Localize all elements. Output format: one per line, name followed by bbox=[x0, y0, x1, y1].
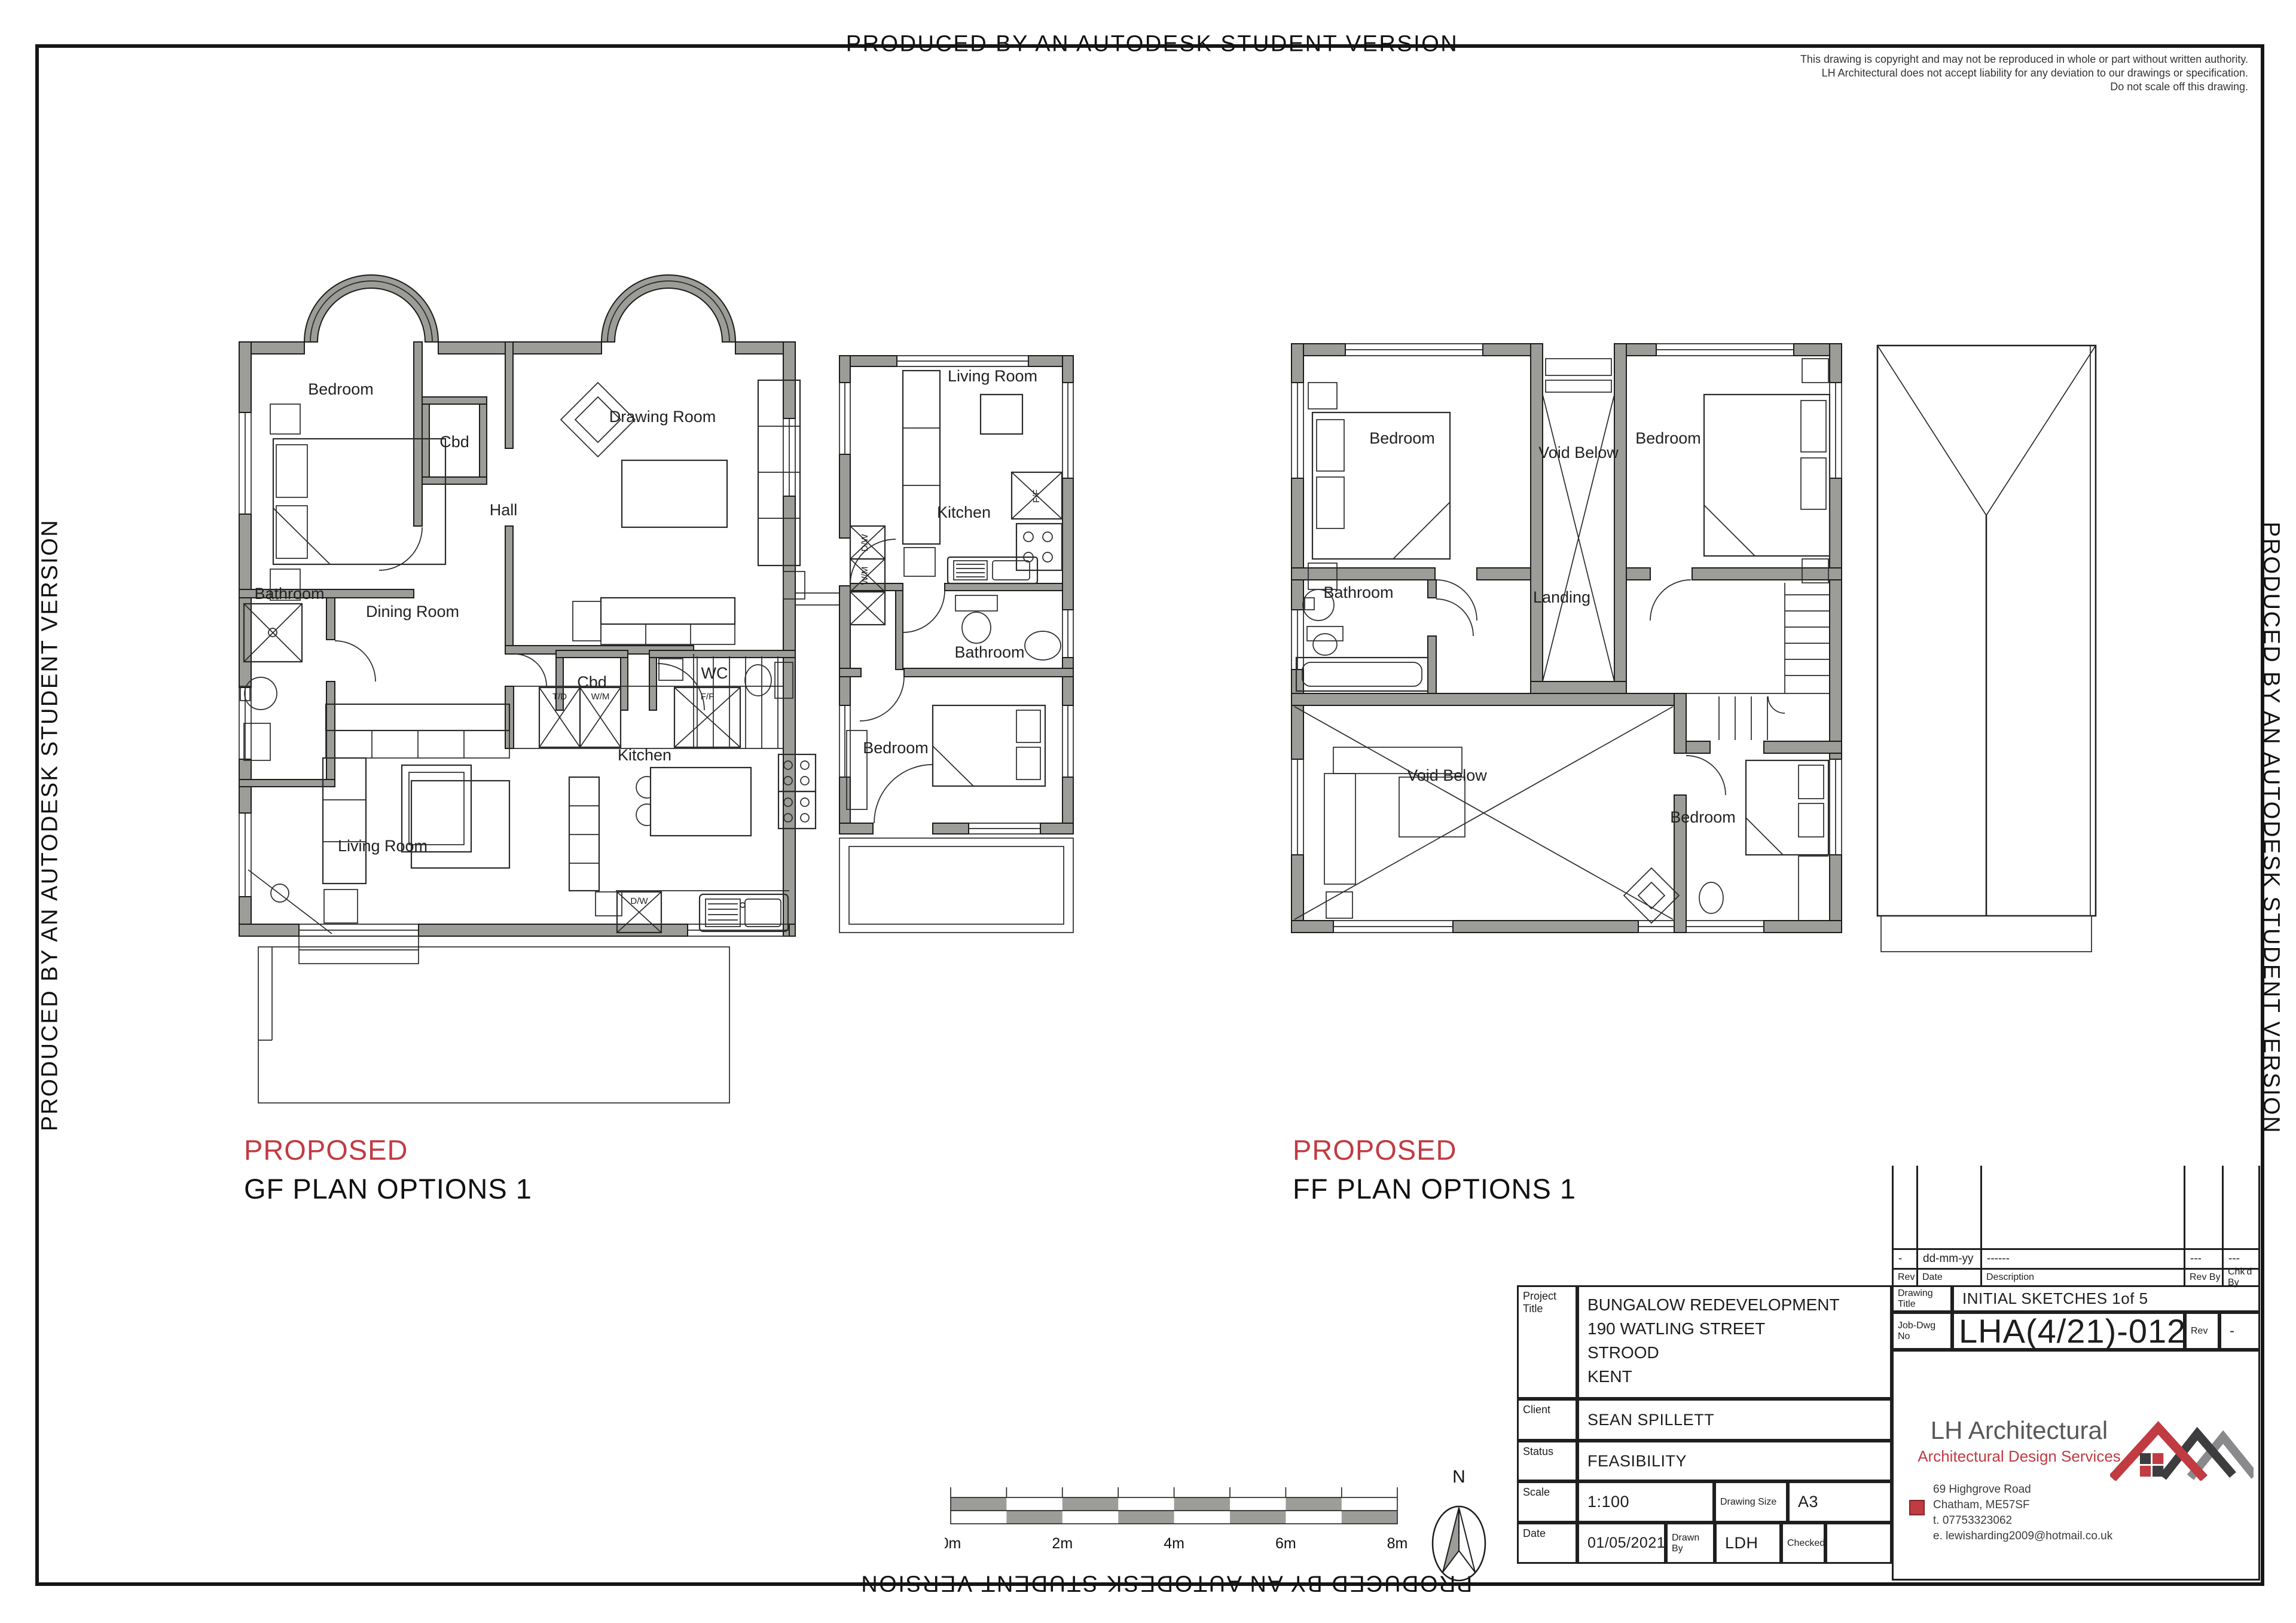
gf-label-dw: D/W bbox=[630, 896, 648, 906]
checked-value bbox=[1825, 1523, 1892, 1564]
gf-label-dining: Dining Room bbox=[366, 603, 459, 621]
ff-label-bedroom-tl: Bedroom bbox=[1369, 429, 1435, 447]
company-name: LH Architectural bbox=[1918, 1416, 2121, 1445]
annex-label-dw: D/W bbox=[860, 534, 870, 552]
gf-plan: Bedroom Cbd Drawing Room Hall Bathroom D… bbox=[239, 275, 839, 1103]
gf-label-hall: Hall bbox=[490, 501, 518, 519]
revision-entry-description: ------ bbox=[1980, 1248, 2185, 1270]
rev-label: Rev bbox=[2185, 1312, 2219, 1350]
floor-plans-drawing: Bedroom Cbd Drawing Room Hall Bathroom D… bbox=[227, 263, 2164, 1130]
gf-label-kitchen: Kitchen bbox=[618, 746, 671, 764]
annex-label-living: Living Room bbox=[948, 367, 1037, 385]
gf-label-wm: W/M bbox=[591, 692, 610, 702]
ff-label-void-top: Void Below bbox=[1538, 444, 1619, 461]
drawing-title-label: Drawing Title bbox=[1892, 1285, 1952, 1312]
gf-proposed-label: PROPOSED bbox=[244, 1133, 532, 1166]
scale-8m: 8m bbox=[1387, 1535, 1408, 1552]
status-value: FEASIBILITY bbox=[1577, 1441, 1892, 1481]
ff-label-bedroom-br: Bedroom bbox=[1670, 808, 1736, 826]
scale-6m: 6m bbox=[1275, 1535, 1296, 1552]
gf-label-drawing-room: Drawing Room bbox=[609, 408, 716, 426]
company-tagline: Architectural Design Services bbox=[1900, 1447, 2139, 1466]
annex-label-bedroom: Bedroom bbox=[863, 739, 929, 757]
scale-4m: 4m bbox=[1164, 1535, 1184, 1552]
drawn-by-label: Drawn By bbox=[1666, 1523, 1715, 1564]
scale-2m: 2m bbox=[1052, 1535, 1073, 1552]
project-title-line1: BUNGALOW REDEVELOPMENT bbox=[1587, 1293, 1890, 1317]
revision-header-chkdby: Chk'd By bbox=[2222, 1268, 2260, 1287]
address-bullet bbox=[1909, 1500, 1925, 1515]
scale-label: Scale bbox=[1517, 1481, 1577, 1523]
rev-value: - bbox=[2219, 1312, 2260, 1350]
revision-entry-rev: - bbox=[1892, 1248, 1918, 1270]
copyright-line3: Do not scale off this drawing. bbox=[1710, 80, 2248, 94]
project-title-value: BUNGALOW REDEVELOPMENT 190 WATLING STREE… bbox=[1579, 1287, 1890, 1389]
autodesk-banner-right: PRODUCED BY AN AUTODESK STUDENT VERSION bbox=[2258, 522, 2284, 1135]
annex-label-ff: F/F bbox=[1031, 490, 1042, 503]
revision-header-revby: Rev By bbox=[2184, 1268, 2224, 1287]
annex-label-kitchen: Kitchen bbox=[937, 503, 991, 521]
checked-label: Checked bbox=[1781, 1523, 1825, 1564]
ff-label-landing: Landing bbox=[1533, 588, 1590, 606]
address-line3: t. 07753323062 bbox=[1933, 1513, 2112, 1529]
project-title-line4: KENT bbox=[1587, 1365, 1890, 1389]
scale-value: 1:100 bbox=[1577, 1481, 1714, 1523]
drawing-size-label: Drawing Size bbox=[1714, 1481, 1788, 1523]
client-value: SEAN SPILLETT bbox=[1577, 1399, 1892, 1441]
annex-label-bathroom: Bathroom bbox=[954, 643, 1024, 661]
project-title-label: Project Title bbox=[1517, 1285, 1577, 1399]
company-logo-icon bbox=[2110, 1421, 2254, 1481]
address-line2: Chatham, ME57SF bbox=[1933, 1497, 2112, 1513]
ff-plan: Bedroom Bedroom Void Below Bathroom Land… bbox=[1291, 344, 1842, 933]
autodesk-banner-left: PRODUCED BY AN AUTODESK STUDENT VERSION bbox=[38, 519, 63, 1132]
company-address: 69 Highgrove Road Chatham, ME57SF t. 077… bbox=[1933, 1482, 2112, 1544]
annex-plan: Living Room Kitchen Bathroom Bedroom D/W… bbox=[839, 356, 1073, 933]
revision-entry-revby: --- bbox=[2184, 1248, 2224, 1270]
company-panel: LH Architectural Architectural Design Se… bbox=[1892, 1350, 2260, 1581]
autodesk-banner-top: PRODUCED BY AN AUTODESK STUDENT VERSION bbox=[846, 32, 1459, 57]
date-label: Date bbox=[1517, 1523, 1577, 1564]
scale-bar: 0m 2m 4m 6m 8m bbox=[945, 1477, 1423, 1578]
revision-header-description: Description bbox=[1980, 1268, 2185, 1287]
revision-entry-date: dd-mm-yy bbox=[1916, 1248, 1982, 1270]
garage-roof-plan bbox=[1877, 346, 2096, 952]
drawing-sheet: PRODUCED BY AN AUTODESK STUDENT VERSION … bbox=[0, 0, 2296, 1623]
revision-header-rev: Rev bbox=[1892, 1268, 1918, 1287]
address-line1: 69 Highgrove Road bbox=[1933, 1482, 2112, 1497]
ff-label-void-bottom: Void Below bbox=[1407, 766, 1487, 784]
drawn-by-value: LDH bbox=[1715, 1523, 1781, 1564]
scale-0m: 0m bbox=[945, 1535, 961, 1552]
gf-plan-title: GF PLAN OPTIONS 1 bbox=[244, 1173, 532, 1205]
job-dwg-no-label: Job-Dwg No bbox=[1892, 1312, 1952, 1350]
north-label: N bbox=[1452, 1467, 1465, 1487]
copyright-line1: This drawing is copyright and may not be… bbox=[1710, 53, 2248, 66]
gf-label-bathroom: Bathroom bbox=[254, 585, 324, 603]
drawing-size-value: A3 bbox=[1788, 1481, 1892, 1523]
title-block: - dd-mm-yy ------ --- --- Rev Date Descr… bbox=[1517, 1166, 2260, 1581]
north-arrow: N bbox=[1426, 1465, 1492, 1596]
status-label: Status bbox=[1517, 1441, 1577, 1481]
gf-label-cbd2: Cbd bbox=[577, 673, 607, 691]
job-dwg-no-value: LHA(4/21)-012 bbox=[1952, 1312, 2185, 1350]
gf-label-living: Living Room bbox=[338, 837, 428, 855]
revision-header-date: Date bbox=[1916, 1268, 1982, 1287]
project-title-line3: STROOD bbox=[1587, 1341, 1890, 1365]
gf-label-wc: WC bbox=[701, 664, 728, 682]
copyright-line2: LH Architectural does not accept liabili… bbox=[1710, 66, 2248, 80]
client-label: Client bbox=[1517, 1399, 1577, 1441]
annex-label-wm: W/M bbox=[860, 567, 870, 585]
drawing-title-value: INITIAL SKETCHES 1of 5 bbox=[1952, 1285, 2260, 1312]
date-value: 01/05/2021 bbox=[1577, 1523, 1666, 1564]
ff-proposed-label: PROPOSED bbox=[1293, 1133, 1576, 1166]
gf-label-cbd1: Cbd bbox=[439, 433, 469, 451]
gf-plan-caption: PROPOSED GF PLAN OPTIONS 1 bbox=[244, 1133, 532, 1205]
ff-label-bedroom-tr: Bedroom bbox=[1635, 429, 1701, 447]
address-line4: e. lewisharding2009@hotmail.co.uk bbox=[1933, 1529, 2112, 1544]
copyright-note: This drawing is copyright and may not be… bbox=[1710, 53, 2248, 94]
project-title-line2: 190 WATLING STREET bbox=[1587, 1317, 1890, 1341]
ff-label-bathroom: Bathroom bbox=[1323, 583, 1393, 601]
gf-label-td: T/D bbox=[552, 692, 567, 702]
gf-label-bedroom: Bedroom bbox=[308, 380, 374, 398]
gf-label-ff: F/F bbox=[701, 692, 715, 702]
